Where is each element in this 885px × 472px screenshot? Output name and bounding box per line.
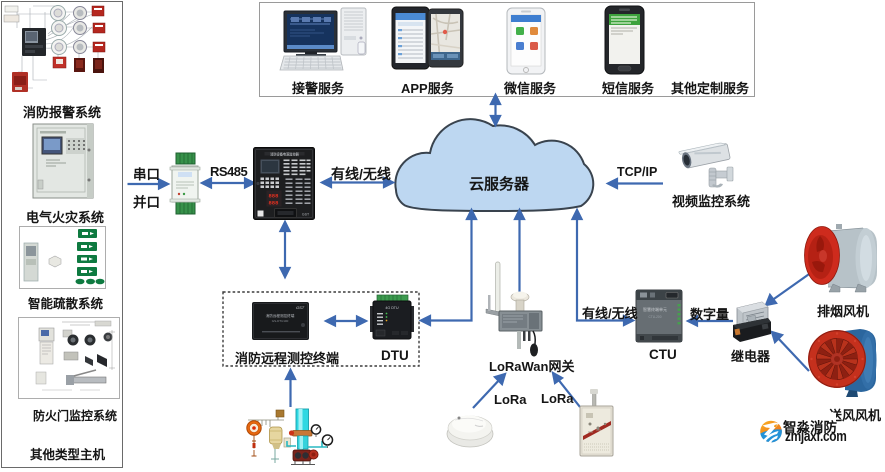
svg-text:888: 888 bbox=[269, 200, 280, 207]
svg-text:GST: GST bbox=[302, 213, 310, 217]
svg-text:CTU-200: CTU-200 bbox=[649, 315, 662, 319]
svg-text:智慧终端单元: 智慧终端单元 bbox=[643, 306, 667, 312]
svg-text:888: 888 bbox=[269, 193, 280, 200]
svg-text:消防设备电源监控器: 消防设备电源监控器 bbox=[270, 151, 299, 156]
